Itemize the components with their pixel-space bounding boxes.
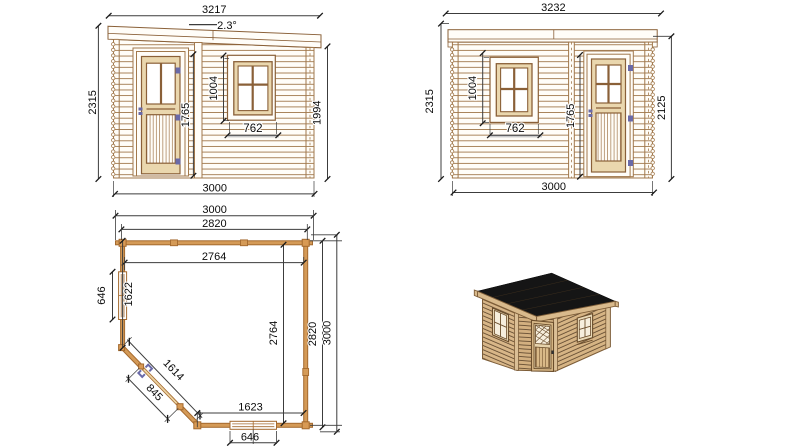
svg-text:2125: 2125 [656,95,668,119]
svg-text:3000: 3000 [542,181,566,193]
svg-text:646: 646 [96,286,108,304]
svg-text:3000: 3000 [203,182,227,194]
svg-text:3232: 3232 [541,2,565,14]
svg-text:762: 762 [506,123,525,135]
svg-text:2315: 2315 [424,89,436,113]
svg-text:646: 646 [241,431,259,443]
svg-text:3000: 3000 [202,204,226,216]
svg-text:1765: 1765 [180,103,192,127]
svg-text:2.3°: 2.3° [217,20,237,32]
svg-text:1623: 1623 [238,402,262,414]
svg-text:1994: 1994 [312,100,324,124]
svg-text:2764: 2764 [268,321,280,345]
svg-text:1765: 1765 [565,104,577,128]
svg-text:1622: 1622 [123,282,135,306]
svg-text:3000: 3000 [321,321,333,345]
svg-text:2820: 2820 [202,218,226,230]
svg-text:1004: 1004 [467,76,479,100]
svg-text:1004: 1004 [208,76,220,100]
svg-text:2764: 2764 [202,251,226,263]
svg-text:2315: 2315 [87,90,99,114]
svg-text:3217: 3217 [202,4,226,16]
svg-text:2820: 2820 [307,322,319,346]
svg-text:762: 762 [243,123,262,135]
